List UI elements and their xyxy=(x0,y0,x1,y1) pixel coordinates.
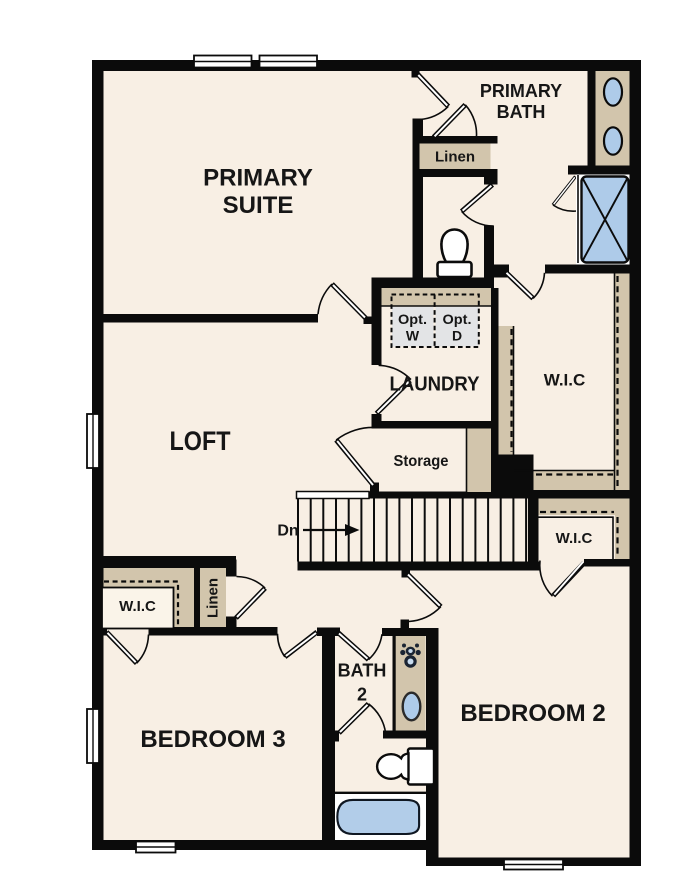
svg-text:W.I.C: W.I.C xyxy=(556,530,593,547)
svg-text:Dn: Dn xyxy=(277,523,298,540)
svg-text:LAUNDRY: LAUNDRY xyxy=(390,374,481,396)
svg-text:BATH: BATH xyxy=(497,102,546,122)
svg-text:Linen: Linen xyxy=(205,578,222,618)
svg-text:2: 2 xyxy=(357,685,367,705)
svg-text:Opt.: Opt. xyxy=(443,311,472,327)
svg-text:W: W xyxy=(406,328,420,344)
svg-text:W.I.C: W.I.C xyxy=(119,598,156,615)
svg-text:BEDROOM 2: BEDROOM 2 xyxy=(460,700,605,727)
svg-text:BEDROOM 3: BEDROOM 3 xyxy=(140,726,285,753)
svg-text:PRIMARY: PRIMARY xyxy=(480,81,562,101)
svg-text:SUITE: SUITE xyxy=(223,192,294,219)
svg-text:BATH: BATH xyxy=(338,661,387,681)
svg-text:Storage: Storage xyxy=(394,453,449,470)
svg-text:LOFT: LOFT xyxy=(170,426,231,456)
svg-text:W.I.C: W.I.C xyxy=(544,371,586,390)
svg-text:Opt.: Opt. xyxy=(398,311,427,327)
svg-text:Linen: Linen xyxy=(435,149,475,166)
svg-text:D: D xyxy=(452,328,462,344)
svg-text:PRIMARY: PRIMARY xyxy=(203,165,313,192)
